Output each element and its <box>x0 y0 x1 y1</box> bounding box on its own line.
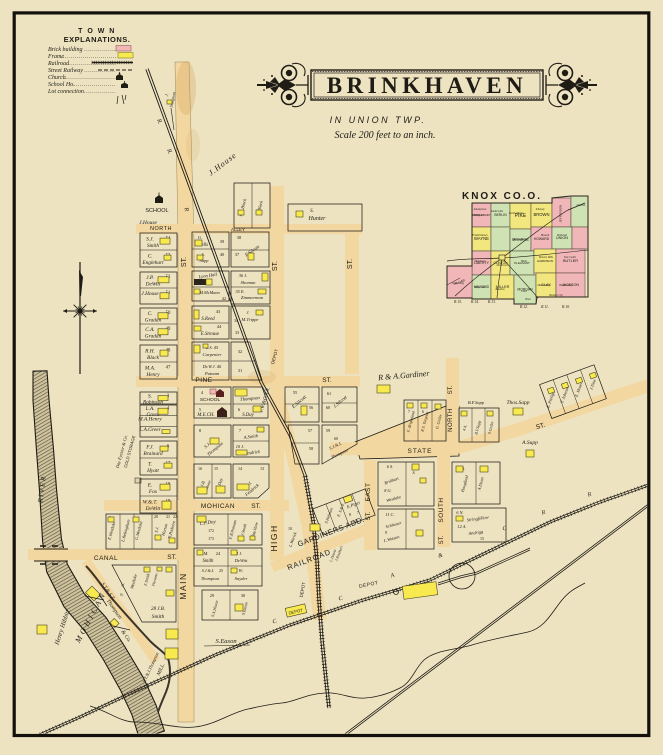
svg-text:9: 9 <box>385 530 387 535</box>
svg-text:School Ho.: School Ho. <box>48 82 75 88</box>
svg-text:S.Day: S.Day <box>242 413 254 418</box>
svg-text:Fox: Fox <box>148 489 158 495</box>
svg-text:R.12.: R.12. <box>519 305 528 309</box>
svg-text:Carpenter: Carpenter <box>203 352 222 357</box>
svg-text:Mt.Liberty: Mt.Liberty <box>473 260 486 263</box>
svg-text:Ankenytown: Ankenytown <box>473 208 487 211</box>
svg-text:Hunts: Hunts <box>520 260 527 263</box>
svg-text:58: 58 <box>309 446 313 451</box>
svg-text:PINE: PINE <box>195 377 212 384</box>
svg-text:7: 7 <box>357 510 359 515</box>
svg-text:MOHICAN: MOHICAN <box>201 503 235 510</box>
svg-text:E.: E. <box>147 483 153 489</box>
svg-text:B.F.Sapp: B.F.Sapp <box>468 400 485 405</box>
svg-text:NORTH: NORTH <box>150 226 172 232</box>
svg-text:HIGH: HIGH <box>269 524 279 551</box>
svg-text:New Castle: New Castle <box>563 256 577 259</box>
svg-text:Smith: Smith <box>203 559 215 564</box>
svg-text:M.A.: M.A. <box>144 366 155 372</box>
svg-text:31: 31 <box>238 368 242 373</box>
svg-text:North Liberty: North Liberty <box>508 212 524 215</box>
svg-text:Scale 200 feet to an inch.: Scale 200 feet to an inch. <box>334 130 435 141</box>
svg-text:Smith: Smith <box>152 614 165 620</box>
svg-text:7: 7 <box>408 410 410 414</box>
svg-text:36 J.: 36 J. <box>239 273 248 278</box>
svg-text:SOUTH: SOUTH <box>438 497 445 522</box>
svg-text:Street Railway: Street Railway <box>48 68 83 74</box>
svg-text:Black: Black <box>147 355 160 361</box>
svg-text:ST.: ST. <box>322 377 332 384</box>
svg-text:10: 10 <box>288 526 292 531</box>
svg-text:Howard: Howard <box>540 234 550 237</box>
svg-text:Putnam: Putnam <box>204 371 220 376</box>
svg-text:12 A.: 12 A. <box>458 524 467 529</box>
svg-text:Brainard: Brainard <box>143 451 163 457</box>
svg-text:S.: S. <box>310 209 314 214</box>
svg-text:Milfordton: Milfordton <box>473 286 486 289</box>
svg-text:ST.: ST. <box>272 261 279 271</box>
svg-text:M.E.CH.: M.E.CH. <box>196 413 214 418</box>
svg-text:Englehart: Englehart <box>141 260 164 266</box>
svg-text:Hunter: Hunter <box>308 216 327 222</box>
svg-text:35 E.: 35 E. <box>235 289 244 294</box>
svg-text:L.A.: L.A. <box>145 406 155 412</box>
svg-text:6.: 6. <box>120 592 123 597</box>
svg-text:61: 61 <box>327 391 331 396</box>
svg-text:S.J.&.I.: S.J.&.I. <box>202 568 215 573</box>
svg-text:E.Strouse: E.Strouse <box>200 332 220 337</box>
svg-text:R.11.: R.11. <box>540 305 549 309</box>
svg-text:S.Eason: S.Eason <box>215 638 236 645</box>
svg-text:Palmyra: Palmyra <box>473 214 484 217</box>
svg-text:173: 173 <box>208 537 214 541</box>
svg-text:HOWARD: HOWARD <box>534 237 550 241</box>
svg-text:F.J.: F.J. <box>145 445 154 451</box>
svg-text:Jelloway: Jelloway <box>535 208 545 211</box>
svg-text:SCHOOL: SCHOOL <box>200 397 221 403</box>
svg-text:28 J.B.: 28 J.B. <box>151 607 165 612</box>
svg-text:HARRISON: HARRISON <box>537 259 553 263</box>
svg-text:BUTLER: BUTLER <box>563 259 578 263</box>
svg-text:ST.: ST. <box>251 503 261 510</box>
svg-text:20: 20 <box>154 514 158 519</box>
svg-text:J.House: J.House <box>141 291 159 297</box>
svg-text:6 N.: 6 N. <box>456 510 463 515</box>
svg-text:STATE: STATE <box>408 448 433 455</box>
svg-text:T.: T. <box>148 462 152 468</box>
svg-text:R.15.: R.15. <box>453 300 462 304</box>
svg-text:Shalersville: Shalersville <box>491 210 504 213</box>
svg-text:11 C.: 11 C. <box>386 512 395 517</box>
svg-text:S.J.: S.J. <box>146 237 154 243</box>
svg-text:R.10.: R.10. <box>561 305 570 309</box>
svg-text:42: 42 <box>222 296 226 301</box>
svg-text:Hunt: Hunt <box>524 298 530 301</box>
svg-text:M.: M. <box>203 551 209 556</box>
svg-text:G.: G. <box>198 235 202 240</box>
svg-text:S.Reed: S.Reed <box>201 317 215 322</box>
svg-text:Hyatt: Hyatt <box>146 468 159 474</box>
svg-text:A.Supp: A.Supp <box>521 440 538 446</box>
svg-text:33: 33 <box>235 330 239 335</box>
svg-text:R.13.: R.13. <box>487 300 496 304</box>
svg-text:34: 34 <box>234 318 238 323</box>
svg-text:Brandon: Brandon <box>495 288 505 291</box>
svg-text:R.14.: R.14. <box>470 300 479 304</box>
svg-text:M.A.Henry: M.A.Henry <box>137 416 162 422</box>
svg-text:C.: C. <box>148 254 153 260</box>
svg-text:15: 15 <box>480 536 484 541</box>
svg-text:J.P.: J.P. <box>146 275 154 281</box>
svg-text:55: 55 <box>293 390 297 395</box>
svg-text:ST.: ST. <box>167 554 177 561</box>
svg-text:Monroe Mills: Monroe Mills <box>538 256 553 259</box>
svg-text:DeWitt: DeWitt <box>234 558 248 563</box>
svg-text:60: 60 <box>334 436 338 441</box>
svg-text:ST.: ST. <box>366 511 372 520</box>
svg-text:15: 15 <box>214 466 218 471</box>
svg-text:Centerburg: Centerburg <box>452 282 465 285</box>
svg-text:T O W N: T O W N <box>78 28 116 35</box>
svg-text:Millwood: Millwood <box>556 234 568 237</box>
svg-text:Zimmerman: Zimmerman <box>241 295 264 300</box>
svg-text:KNOX CO.O.: KNOX CO.O. <box>462 191 542 202</box>
svg-text:14: 14 <box>238 466 242 471</box>
svg-text:DeWitt: DeWitt <box>145 506 161 512</box>
svg-text:ALLEY: ALLEY <box>231 227 245 232</box>
svg-text:59: 59 <box>326 428 330 433</box>
svg-text:Lot connection: Lot connection <box>47 89 84 95</box>
svg-text:Snyder: Snyder <box>235 576 248 581</box>
svg-text:MAIN: MAIN <box>178 572 188 599</box>
svg-text:ST.: ST. <box>181 257 188 267</box>
svg-text:10 J.: 10 J. <box>236 444 245 449</box>
svg-text:13: 13 <box>260 466 264 471</box>
svg-text:Dr.W.J. 46: Dr.W.J. 46 <box>202 364 222 369</box>
svg-text:L.A.Greer: L.A.Greer <box>138 427 161 433</box>
svg-text:SCHOOL: SCHOOL <box>145 208 168 214</box>
svg-text:16: 16 <box>198 466 202 471</box>
svg-text:R.H.: R.H. <box>144 349 155 355</box>
svg-text:Smith: Smith <box>147 243 159 249</box>
svg-text:J.: J. <box>246 310 249 315</box>
svg-text:M.Trippe: M.Trippe <box>241 317 259 322</box>
svg-text:Brick building: Brick building <box>48 47 83 53</box>
svg-text:Fredericktown: Fredericktown <box>471 234 488 237</box>
svg-text:Thompson: Thompson <box>201 576 220 581</box>
svg-text:60: 60 <box>326 405 330 410</box>
svg-text:NORTH: NORTH <box>448 408 454 432</box>
svg-text:22: 22 <box>173 514 177 519</box>
svg-text:Church: Church <box>48 75 66 81</box>
svg-text:BROWN: BROWN <box>533 212 549 217</box>
svg-text:Bladensburg: Bladensburg <box>559 284 573 287</box>
svg-text:S.: S. <box>148 393 152 399</box>
svg-text:Mt.Vernon: Mt.Vernon <box>496 264 509 267</box>
svg-text:Thos.Sapp: Thos.Sapp <box>506 400 529 406</box>
svg-text:CANAL: CANAL <box>94 555 118 562</box>
svg-text:ST.: ST. <box>439 535 445 544</box>
svg-text:Frame: Frame <box>47 54 64 60</box>
svg-text:6 S.: 6 S. <box>387 464 393 469</box>
svg-text:C.: C. <box>148 311 153 317</box>
svg-text:S.: S. <box>413 470 416 475</box>
svg-text:172: 172 <box>208 529 214 533</box>
svg-text:W.&.T.: W.&.T. <box>143 500 158 506</box>
svg-text:47: 47 <box>166 365 171 370</box>
svg-text:BERLIN: BERLIN <box>494 213 507 217</box>
svg-text:32: 32 <box>238 349 242 354</box>
svg-text:BRINKHAVEN: BRINKHAVEN <box>327 73 528 98</box>
svg-text:Batemantown: Batemantown <box>513 238 528 241</box>
svg-text:Martinsburg: Martinsburg <box>536 284 551 287</box>
svg-text:Shoman: Shoman <box>241 280 257 285</box>
svg-text:8: 8 <box>349 512 351 517</box>
svg-text:C.A.: C.A. <box>145 327 154 333</box>
svg-text:6: 6 <box>422 410 424 414</box>
svg-text:21: 21 <box>166 514 170 519</box>
svg-text:25: 25 <box>219 568 223 573</box>
svg-text:8 G.: 8 G. <box>384 488 391 493</box>
svg-text:Utica: Utica <box>521 290 527 293</box>
svg-text:Henry: Henry <box>145 372 160 378</box>
svg-text:Railroad: Railroad <box>47 61 70 67</box>
svg-text:IN UNION TWP.: IN UNION TWP. <box>330 115 427 125</box>
svg-text:EXPLANATIONS.: EXPLANATIONS. <box>64 35 131 44</box>
svg-text:ST.: ST. <box>448 385 454 394</box>
svg-text:ST.: ST. <box>347 259 354 269</box>
